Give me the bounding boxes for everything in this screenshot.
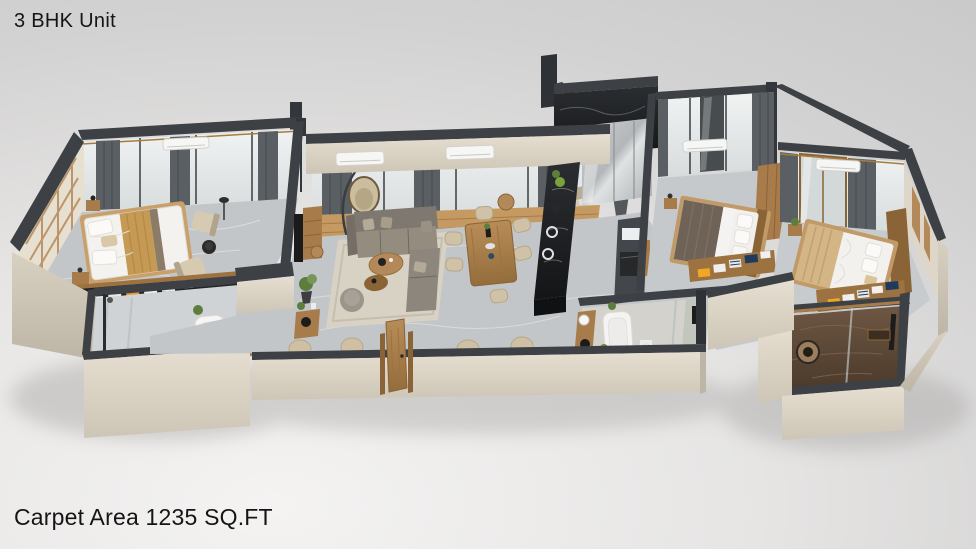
- pouf: [340, 288, 364, 312]
- column: [696, 290, 706, 344]
- balcony-table: [498, 194, 514, 210]
- tv-screen: [294, 214, 303, 262]
- exterior-wall-face: [252, 352, 706, 400]
- wash-basin: [797, 341, 819, 363]
- exterior-wall-face: [84, 348, 250, 438]
- ac-unit: [163, 137, 210, 150]
- exterior-wall-face: [938, 240, 948, 336]
- ac-unit: [816, 159, 861, 172]
- ac-unit: [446, 145, 494, 160]
- ac-unit: [336, 151, 384, 166]
- ac-unit: [683, 139, 728, 152]
- floorplan-render: 3 BHK Unit Carpet Area 1235 SQ.FT: [0, 0, 976, 549]
- carpet-area-label: Carpet Area 1235 SQ.FT: [14, 504, 273, 531]
- unit-type-label: 3 BHK Unit: [14, 10, 116, 33]
- exterior-wall-face: [758, 326, 792, 404]
- side-table: [202, 240, 216, 254]
- ensuite-bathroom: [82, 273, 258, 438]
- floorplan-art: [0, 0, 976, 549]
- stool: [311, 246, 323, 258]
